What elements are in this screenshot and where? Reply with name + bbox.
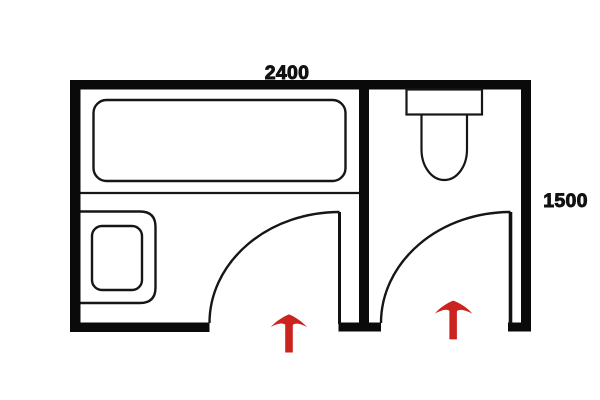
svg-text:2400: 2400 bbox=[265, 62, 310, 84]
svg-text:1500: 1500 bbox=[543, 190, 588, 212]
